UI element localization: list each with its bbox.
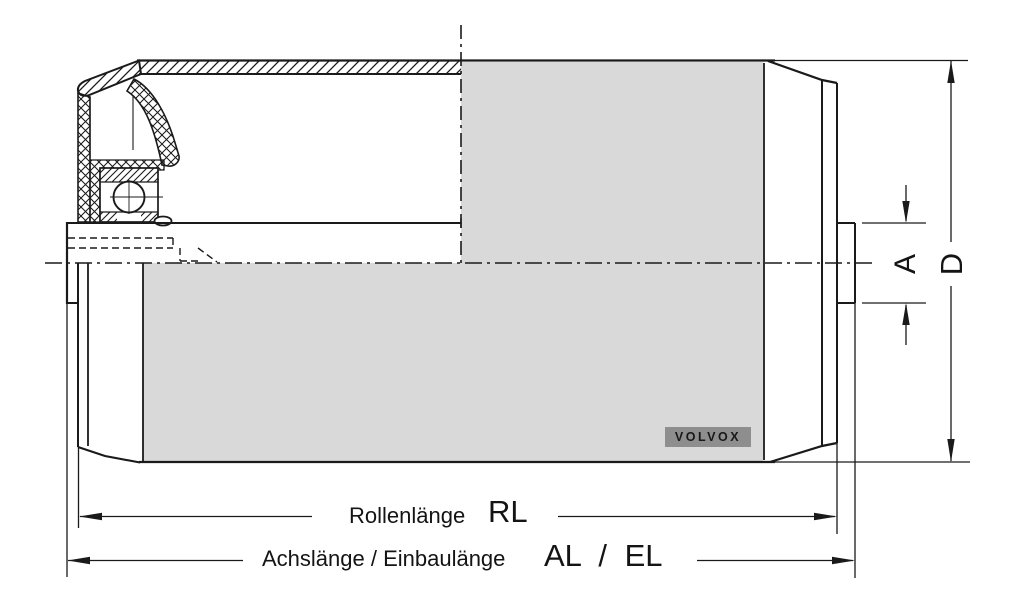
roller-diameter-symbol: D xyxy=(935,242,967,286)
axle-length-label: Achslänge / Einbaulänge xyxy=(262,548,505,570)
roller-surface-upper xyxy=(461,62,763,263)
cap-chamfer-left xyxy=(78,447,140,463)
cap-chamfer-top-right xyxy=(768,61,837,83)
ball-bearing-section xyxy=(100,168,172,226)
arrowhead-left xyxy=(68,557,91,564)
axle-length-symbol: AL / EL xyxy=(544,540,663,571)
shaft-seal-ring xyxy=(155,217,172,226)
roller-length-symbol: RL xyxy=(488,496,528,527)
arrowhead-left xyxy=(79,513,102,520)
brand-logo: VOLVOX xyxy=(665,427,751,447)
housing-labyrinth-arm xyxy=(127,79,179,166)
arrowhead-down xyxy=(947,439,954,462)
arrowhead-right xyxy=(814,513,837,520)
arrowhead-up xyxy=(947,61,954,84)
bearing-inner-race xyxy=(101,212,118,222)
arrowhead-up xyxy=(902,303,909,325)
arrowhead-right xyxy=(832,557,855,564)
roller-length-label: Rollenlänge xyxy=(349,505,465,527)
bearing-outer-race xyxy=(101,169,158,183)
hidden-bore-lines xyxy=(68,238,217,262)
axle-diameter-symbol: A xyxy=(890,242,922,286)
cap-chamfer-bottom-right xyxy=(770,443,837,462)
left-end-exterior xyxy=(78,263,143,463)
right-end xyxy=(764,61,855,462)
arrowhead-down xyxy=(902,201,909,223)
drawing-sheet: VOLVOX Rollenlänge RL Achslänge / Einbau… xyxy=(0,0,1024,615)
roller-surface-shading xyxy=(143,62,763,462)
housing-left-wall xyxy=(78,93,90,222)
